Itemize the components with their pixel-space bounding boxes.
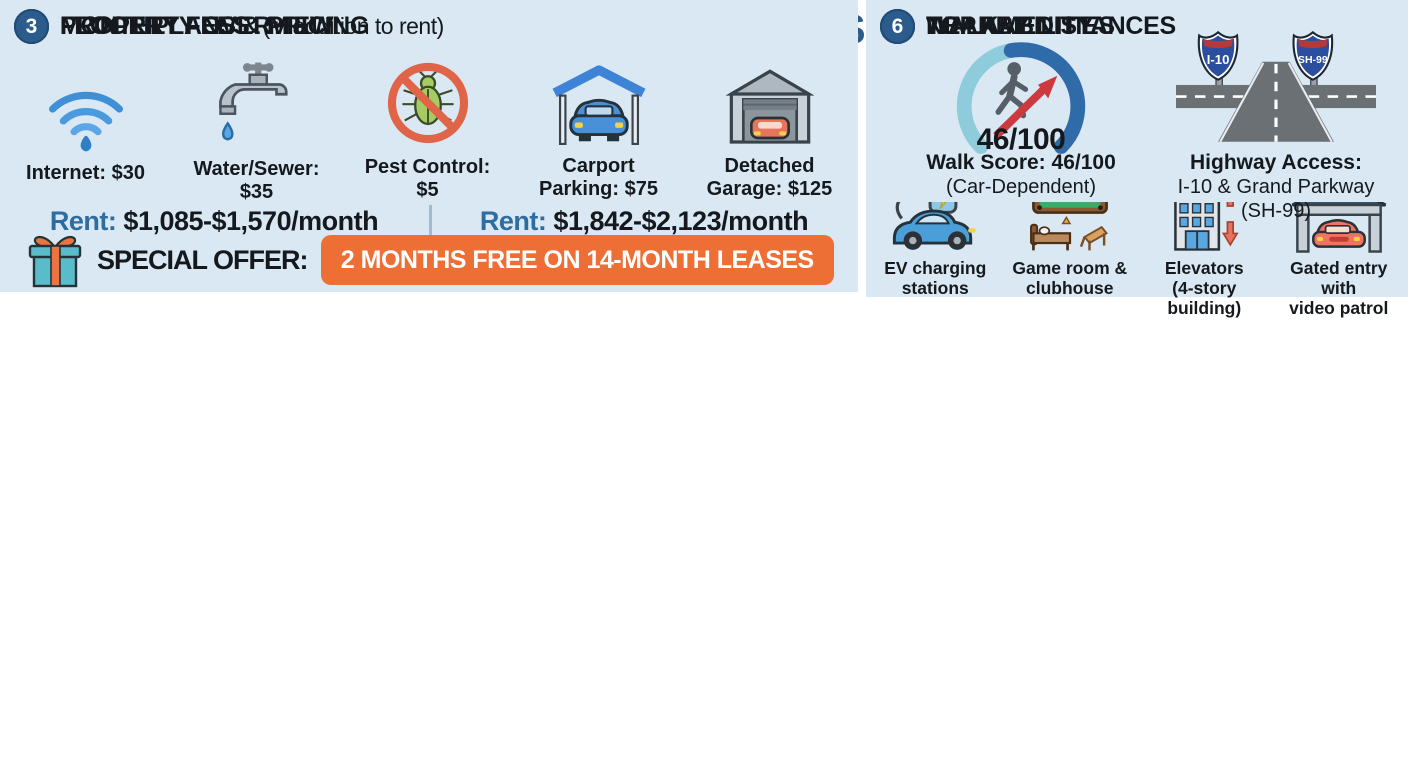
fees-row: Internet: $30 Water/Sewer: $35 (0, 52, 858, 201)
walk-score-gauge: 46/100 (906, 36, 1136, 157)
fee-label: Pest Control: $5 (365, 156, 491, 202)
highway-access-label: Highway Access:I-10 & Grand Parkway (SH-… (1161, 150, 1391, 223)
section-number-badge: 3 (14, 9, 49, 44)
section-title: MONTHLY FEES (60, 12, 250, 41)
i10-shield-label: I-10 (1207, 52, 1230, 67)
section-number-badge: 6 (880, 9, 915, 44)
monthly-fees-panel: 3 MONTHLY FEES (in addition to rent) Int… (0, 0, 858, 205)
fee-item: Pest Control: $5 (342, 52, 513, 201)
fee-label: Internet: $30 (26, 162, 145, 185)
pest-control-icon (385, 60, 471, 146)
fee-label: Carport Parking: $75 (539, 155, 658, 201)
rent-label: Rent: (480, 206, 547, 236)
carport-icon (552, 65, 646, 145)
special-offer-row: SPECIAL OFFER: 2 MONTHS FREE ON 14-MONTH… (26, 234, 834, 286)
highway-access-graphic: I-10 SH-99 (1161, 30, 1391, 147)
fee-item: Carport Parking: $75 (513, 52, 684, 201)
walk-score-label: Walk Score: 46/100(Car-Dependent) (906, 150, 1136, 199)
section-title: WALKABILITY (926, 12, 1094, 41)
special-offer-badge: 2 MONTHS FREE ON 14-MONTH LEASES (321, 235, 834, 285)
rent-value: $1,842-$2,123/month (546, 206, 808, 236)
wifi-icon (43, 78, 129, 152)
rent-value: $1,085-$1,570/month (116, 206, 378, 236)
amenity-label: EV charging stations (884, 258, 986, 298)
amenity-label: Game room & clubhouse (1012, 258, 1127, 298)
fee-item: Detached Garage: $125 (684, 52, 855, 201)
sh99-shield-icon: SH-99 (1294, 32, 1333, 79)
amenity-label: Gated entry with video patrol (1272, 258, 1407, 318)
section-note: (in addition to rent) (263, 13, 444, 40)
walkability-header: 6 WALKABILITY (880, 9, 1094, 44)
sh99-shield-label: SH-99 (1298, 54, 1328, 66)
faucet-icon (218, 60, 296, 148)
rent-row: Rent: $1,842-$2,123/month (448, 206, 840, 237)
gift-icon (26, 231, 84, 289)
monthly-fees-header: 3 MONTHLY FEES (in addition to rent) (14, 9, 444, 44)
fee-label: Water/Sewer: $35 (194, 158, 320, 204)
amenity-label: Elevators (4-story building) (1137, 258, 1272, 318)
fee-item: Internet: $30 (0, 52, 171, 201)
special-offer-label: SPECIAL OFFER: (97, 245, 308, 276)
highway-icon: I-10 SH-99 (1176, 30, 1376, 142)
fee-label: Detached Garage: $125 (707, 155, 833, 201)
i10-shield-icon: I-10 (1199, 32, 1238, 79)
garage-icon (726, 67, 814, 145)
fee-item: Water/Sewer: $35 (171, 52, 342, 201)
